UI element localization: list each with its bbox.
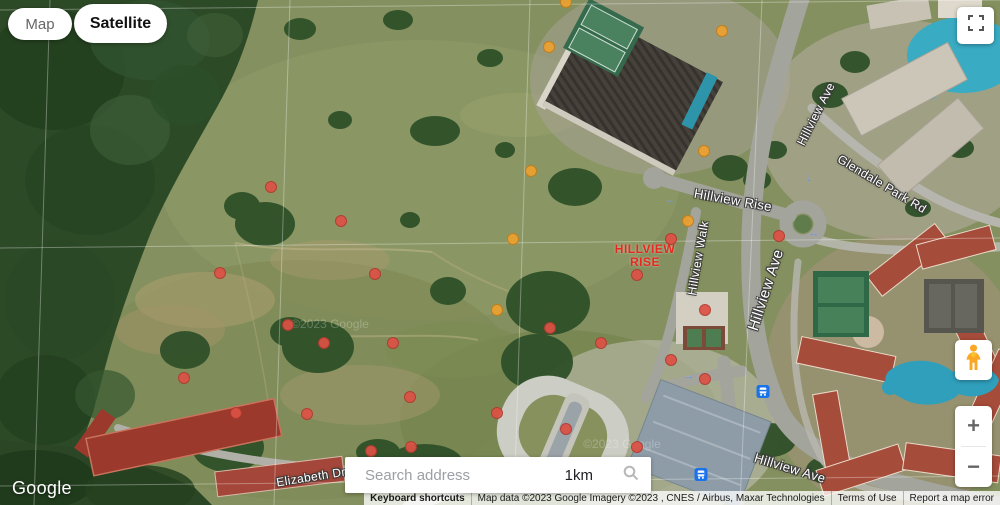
map-marker-red[interactable] <box>699 304 711 316</box>
satellite-imagery <box>0 0 1000 505</box>
minus-icon: − <box>967 454 980 480</box>
road-arrow-icon: ↓ <box>806 172 812 184</box>
terms-of-use-link[interactable]: Terms of Use <box>831 491 903 505</box>
road-arrow-icon: → <box>684 370 695 382</box>
bus-stop-icon[interactable] <box>695 468 708 486</box>
map-marker-red[interactable] <box>404 391 416 403</box>
map-marker-red[interactable] <box>214 267 226 279</box>
map-view-label: Map <box>25 16 54 33</box>
scale-text: 1km <box>565 467 593 484</box>
map-marker-red[interactable] <box>631 269 643 281</box>
map-marker-red[interactable] <box>491 407 503 419</box>
map-marker-red[interactable] <box>544 322 556 334</box>
search-bar: 1km <box>345 457 651 493</box>
pegman-icon <box>965 344 982 376</box>
site-label-hillview-rise: HILLVIEW RISE <box>615 243 675 269</box>
zoom-control: + − <box>955 406 992 487</box>
google-logo[interactable]: Google <box>12 478 72 499</box>
satellite-view-button[interactable]: Satellite <box>74 4 167 43</box>
map-marker-orange[interactable] <box>698 145 710 157</box>
road-arrow-icon: ← <box>665 194 676 206</box>
map-marker-red[interactable] <box>282 319 294 331</box>
plus-icon: + <box>967 413 980 439</box>
map-marker-red[interactable] <box>665 233 677 245</box>
map-marker-red[interactable] <box>405 441 417 453</box>
map-marker-orange[interactable] <box>716 25 728 37</box>
map-marker-orange[interactable] <box>682 215 694 227</box>
fullscreen-icon <box>968 15 984 36</box>
search-icon[interactable] <box>623 465 639 486</box>
keyboard-shortcuts-link[interactable]: Keyboard shortcuts <box>364 491 470 505</box>
map-marker-red[interactable] <box>387 337 399 349</box>
map-marker-red[interactable] <box>230 407 242 419</box>
pegman-button[interactable] <box>955 340 992 380</box>
map-marker-red[interactable] <box>301 408 313 420</box>
map-view-button[interactable]: Map <box>8 8 72 40</box>
zoom-out-button[interactable]: − <box>955 447 992 487</box>
imagery-watermark: ©2023 Google <box>583 437 661 451</box>
map-marker-red[interactable] <box>595 337 607 349</box>
map-marker-orange[interactable] <box>543 41 555 53</box>
search-input[interactable] <box>363 466 565 485</box>
road-arrow-icon: ← <box>809 227 820 239</box>
map-marker-red[interactable] <box>369 268 381 280</box>
fullscreen-button[interactable] <box>957 7 994 44</box>
map-marker-red[interactable] <box>335 215 347 227</box>
map-data-text: Map data ©2023 Google Imagery ©2023 , CN… <box>471 491 831 505</box>
imagery-watermark: ©2023 Google <box>291 317 369 331</box>
map-marker-red[interactable] <box>699 373 711 385</box>
map-marker-orange[interactable] <box>525 165 537 177</box>
bus-stop-icon[interactable] <box>757 385 770 403</box>
satellite-view-label: Satellite <box>90 15 151 33</box>
map-marker-red[interactable] <box>665 354 677 366</box>
map-marker-red[interactable] <box>318 337 330 349</box>
map-marker-red[interactable] <box>560 423 572 435</box>
map-marker-red[interactable] <box>178 372 190 384</box>
zoom-in-button[interactable]: + <box>955 406 992 446</box>
map-marker-red[interactable] <box>773 230 785 242</box>
map-marker-orange[interactable] <box>491 304 503 316</box>
map-canvas[interactable]: Hillview RiseHillview WalkHillview AveHi… <box>0 0 1000 505</box>
map-marker-orange[interactable] <box>507 233 519 245</box>
report-map-error-link[interactable]: Report a map error <box>903 491 1000 505</box>
attribution-bar: Keyboard shortcuts Map data ©2023 Google… <box>364 491 1000 505</box>
map-marker-red[interactable] <box>365 445 377 457</box>
map-marker-red[interactable] <box>265 181 277 193</box>
map-marker-red[interactable] <box>631 441 643 453</box>
